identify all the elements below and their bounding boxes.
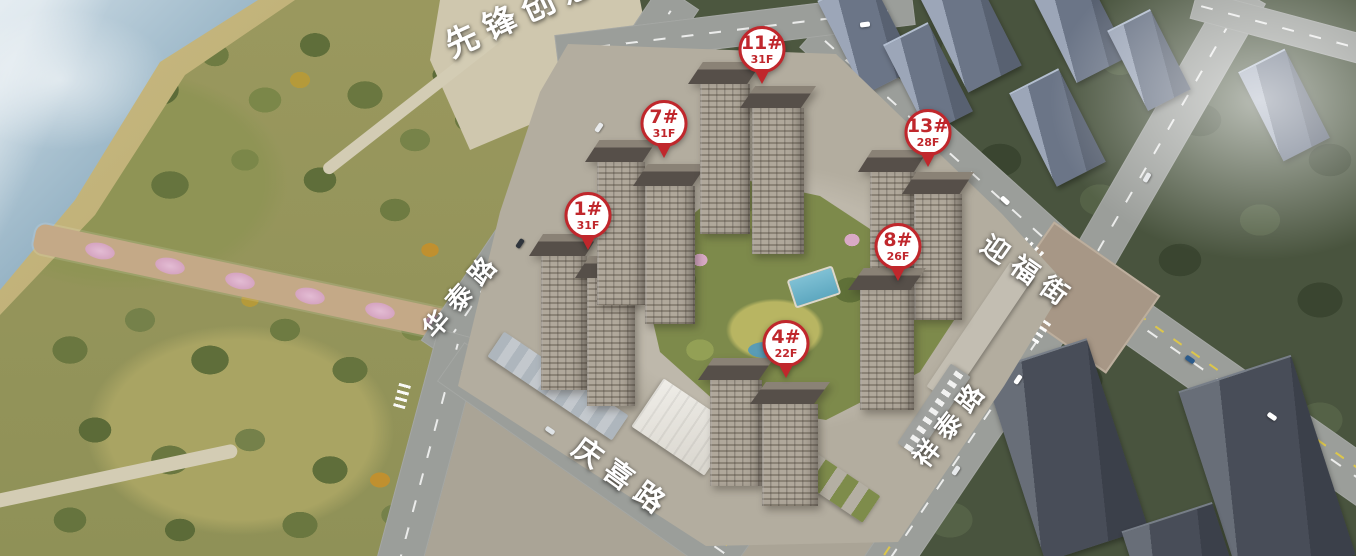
building-number: 8# (883, 231, 912, 250)
tower-4a (710, 358, 762, 486)
marker-bubble: 8# 26F (875, 223, 922, 270)
aerial-masterplan: 先锋创意 华泰路 迎福街 祥泰路 庆喜路 11# 31F 7# 31F 13# … (0, 0, 1356, 556)
building-marker-1[interactable]: 1# 31F (565, 192, 612, 250)
building-marker-4[interactable]: 4# 22F (763, 320, 810, 378)
marker-bubble: 4# 22F (763, 320, 810, 367)
marker-pointer (890, 266, 906, 281)
building-floors: 31F (751, 54, 774, 65)
tower-facade (710, 380, 762, 486)
building-marker-7[interactable]: 7# 31F (641, 100, 688, 158)
building-floors: 26F (887, 251, 910, 262)
tower-facade (860, 290, 914, 410)
tower-11b (752, 86, 804, 254)
tower-7b (645, 164, 695, 324)
building-marker-8[interactable]: 8# 26F (875, 223, 922, 281)
tower-facade (752, 108, 804, 254)
building-number: 13# (907, 117, 949, 136)
marker-bubble: 13# 28F (905, 109, 952, 156)
marker-pointer (778, 363, 794, 378)
building-number: 7# (649, 108, 678, 127)
building-number: 1# (573, 200, 602, 219)
marker-bubble: 7# 31F (641, 100, 688, 147)
marker-pointer (920, 152, 936, 167)
tower-facade (762, 404, 818, 506)
building-floors: 31F (653, 128, 676, 139)
building-number: 4# (771, 328, 800, 347)
marker-bubble: 11# 31F (739, 26, 786, 73)
marker-bubble: 1# 31F (565, 192, 612, 239)
building-marker-11[interactable]: 11# 31F (739, 26, 786, 84)
marker-pointer (580, 235, 596, 250)
marker-pointer (754, 69, 770, 84)
tower-11a (700, 62, 750, 234)
building-marker-13[interactable]: 13# 28F (905, 109, 952, 167)
tower-8 (860, 268, 914, 410)
tower-facade (645, 186, 695, 324)
marker-pointer (656, 143, 672, 158)
tower-1a (541, 234, 587, 390)
building-floors: 22F (775, 348, 798, 359)
building-number: 11# (741, 34, 783, 53)
building-floors: 31F (577, 220, 600, 231)
tower-4b (762, 382, 818, 506)
building-floors: 28F (917, 137, 940, 148)
